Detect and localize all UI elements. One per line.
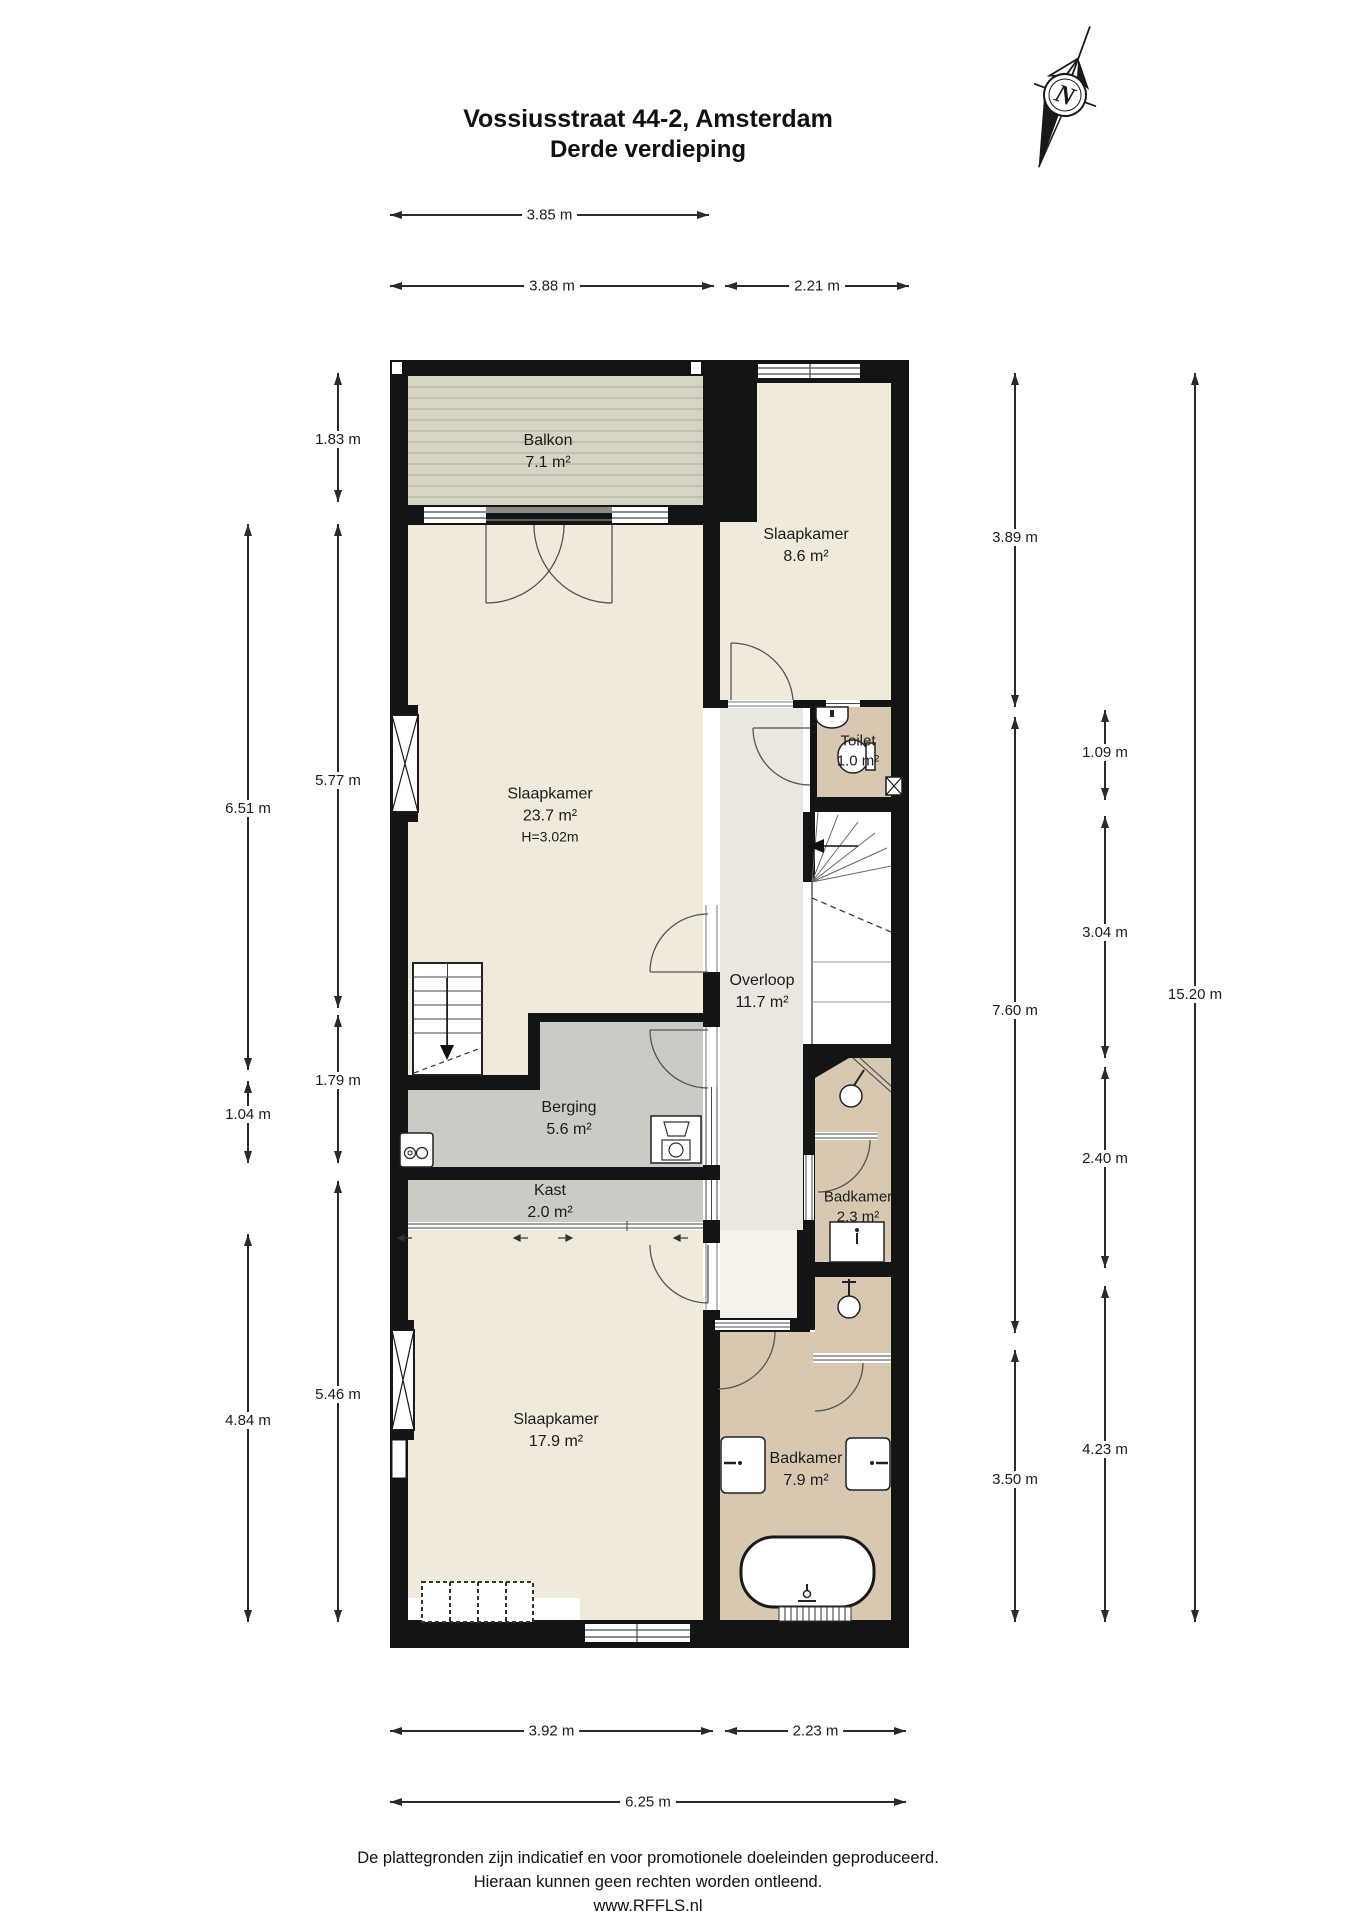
dimension-horizontal: 3.88 m (390, 279, 714, 293)
room-name: Balkon (524, 430, 573, 452)
floorplan-page: Vossiusstraat 44-2, Amsterdam Derde verd… (0, 0, 1358, 1920)
wall-berging-top-left (390, 1075, 528, 1090)
footer-line-2: Hieraan kunnen geen rechten worden ontle… (357, 1871, 939, 1895)
dimension-label: 3.89 m (987, 529, 1043, 546)
room-area: 2.0 m² (527, 1202, 572, 1224)
dimension-horizontal: 2.21 m (725, 279, 909, 293)
room-name: Slaapkamer (507, 783, 592, 805)
room-label-badkamer-1: Badkamer2.3 m² (824, 1188, 892, 1227)
wall-badkamer1-bottom (803, 1262, 891, 1277)
room-label-slaapkamer-1: Slaapkamer8.6 m² (763, 524, 848, 568)
dimension-label: 3.04 m (1077, 924, 1133, 941)
room-label-balkon: Balkon7.1 m² (524, 430, 573, 474)
room-label-slaapkamer-3: Slaapkamer17.9 m² (513, 1409, 598, 1453)
dimension-vertical: 3.50 m (1008, 1350, 1022, 1622)
dimension-horizontal: 3.85 m (390, 208, 709, 222)
room-name: Slaapkamer (513, 1409, 598, 1431)
badkamer1-sink-tap (855, 1228, 859, 1232)
room-label-berging: Berging5.6 m² (541, 1097, 596, 1141)
dimension-vertical: 3.04 m (1098, 816, 1112, 1058)
dimension-vertical: 1.79 m (331, 1015, 345, 1163)
wall-pier (703, 360, 757, 522)
dimension-label: 3.88 m (524, 278, 580, 295)
room-area: 2.3 m² (824, 1207, 892, 1227)
dimension-vertical: 7.60 m (1008, 717, 1022, 1333)
room-name: Berging (541, 1097, 596, 1119)
room-slaapkamer1-floor (757, 383, 891, 522)
wall-chimney-cap1b (392, 812, 418, 822)
dimension-vertical: 5.77 m (331, 524, 345, 1008)
room-name: Badkamer (824, 1188, 892, 1208)
room-area: 7.1 m² (524, 452, 573, 474)
wall-corridor-c (703, 1165, 720, 1180)
dimension-vertical: 2.40 m (1098, 1067, 1112, 1268)
room-label-kast: Kast2.0 m² (527, 1180, 572, 1224)
dimension-vertical: 1.09 m (1098, 710, 1112, 800)
dimension-label: 1.79 m (310, 1072, 366, 1089)
post-balkon-right (691, 362, 701, 374)
dimension-label: 3.92 m (524, 1723, 580, 1740)
dimension-label: 1.09 m (1077, 744, 1133, 761)
room-label-slaapkamer-2: Slaapkamer23.7 m²H=3.02m (507, 783, 592, 846)
dimension-label: 6.25 m (620, 1794, 676, 1811)
wall-berging-jog (528, 1013, 540, 1090)
room-name: Overloop (730, 970, 795, 992)
dimension-label: 7.60 m (987, 1002, 1043, 1019)
shower-head-1 (840, 1085, 862, 1107)
footer-line-3: www.RFFLS.nl (357, 1895, 939, 1919)
wall-chimney-cap2a (392, 1320, 414, 1330)
wall-chimney-cap2b (392, 1430, 414, 1440)
room-area: 11.7 m² (730, 992, 795, 1014)
dimension-label: 4.23 m (1077, 1441, 1133, 1458)
vestibule-floor (720, 1230, 797, 1318)
dimension-vertical: 1.83 m (331, 373, 345, 502)
wall-right (891, 360, 909, 1648)
dimension-label: 6.51 m (220, 800, 276, 817)
room-area: 5.6 m² (541, 1119, 596, 1141)
wall-top-balkon (390, 360, 703, 376)
room-area: 7.9 m² (770, 1470, 843, 1492)
window-balkon-1 (424, 507, 486, 523)
footer-line-1: De plattegronden zijn indicatief en voor… (357, 1847, 939, 1871)
stairs-slaapkamer2 (413, 963, 482, 1075)
post-balkon-left (392, 362, 402, 374)
toilet-sink-tap (830, 710, 834, 717)
badkamer2-sink-left (721, 1437, 765, 1493)
room-label-badkamer-2: Badkamer7.9 m² (770, 1448, 843, 1492)
bathtub-faucet (804, 1591, 811, 1598)
dimension-horizontal: 6.25 m (390, 1795, 906, 1809)
room-area: 17.9 m² (513, 1431, 598, 1453)
wardrobe-dashed (422, 1582, 533, 1622)
french-door-lintel (486, 507, 612, 513)
wall-chimney-cap1a (392, 705, 418, 715)
wall-berging-top-right (528, 1013, 703, 1022)
dimension-label: 2.40 m (1077, 1150, 1133, 1167)
dimension-horizontal: 3.92 m (390, 1724, 713, 1738)
door-opening-slaapkamer1 (728, 700, 793, 708)
wall-berging-bottom (390, 1167, 703, 1180)
dimension-label: 2.23 m (788, 1723, 844, 1740)
room-name: Kast (527, 1180, 572, 1202)
dimension-vertical: 4.23 m (1098, 1286, 1112, 1622)
glass-door-shower (813, 1353, 891, 1363)
room-area: 8.6 m² (763, 546, 848, 568)
dimension-label: 5.46 m (310, 1386, 366, 1403)
dimension-vertical: 6.51 m (241, 524, 255, 1070)
dimension-label: 4.84 m (220, 1412, 276, 1429)
room-name: Slaapkamer (763, 524, 848, 546)
window-balkon-2 (612, 507, 668, 523)
room-name: Toilet (837, 732, 880, 752)
wall-corridor-e (703, 1310, 720, 1648)
dimension-vertical: 1.04 m (241, 1081, 255, 1163)
dimension-label: 5.77 m (310, 772, 366, 789)
room-area: 1.0 m² (837, 751, 880, 771)
wall-toilet-left (810, 707, 817, 797)
dimension-label: 15.20 m (1163, 986, 1227, 1003)
dimension-vertical: 3.89 m (1008, 373, 1022, 707)
compass-rose: N (1008, 15, 1121, 179)
wall-stair-bottom (803, 1044, 891, 1058)
wall-vestibule-right (797, 1230, 810, 1332)
wall-niche (392, 1440, 406, 1478)
room-area: 23.7 m² (507, 805, 592, 827)
wall-corridor-b (703, 972, 720, 1027)
wall-corridor-a (703, 522, 720, 700)
dimension-vertical: 4.84 m (241, 1234, 255, 1622)
room-label-overloop: Overloop11.7 m² (730, 970, 795, 1014)
screen-badkamer1 (815, 1132, 877, 1140)
window-slaapkamer1-top (758, 364, 860, 378)
footer-disclaimer: De plattegronden zijn indicatief en voor… (357, 1847, 939, 1919)
wall-corridor-d (703, 1220, 720, 1243)
dimension-horizontal: 2.23 m (725, 1724, 906, 1738)
dimension-label: 1.04 m (220, 1106, 276, 1123)
room-ceiling-height: H=3.02m (507, 827, 592, 846)
room-name: Badkamer (770, 1448, 843, 1470)
dimension-label: 3.50 m (987, 1471, 1043, 1488)
dimension-vertical: 5.46 m (331, 1181, 345, 1622)
wall-toilet-bottom (810, 797, 891, 812)
dimension-label: 2.21 m (789, 278, 845, 295)
dimension-label: 1.83 m (310, 431, 366, 448)
dimension-vertical: 15.20 m (1188, 373, 1202, 1622)
shower-head-2 (838, 1296, 860, 1318)
room-label-toilet: Toilet1.0 m² (837, 732, 880, 771)
glass-door-vestibule (715, 1320, 790, 1330)
dimension-label: 3.85 m (522, 207, 578, 224)
